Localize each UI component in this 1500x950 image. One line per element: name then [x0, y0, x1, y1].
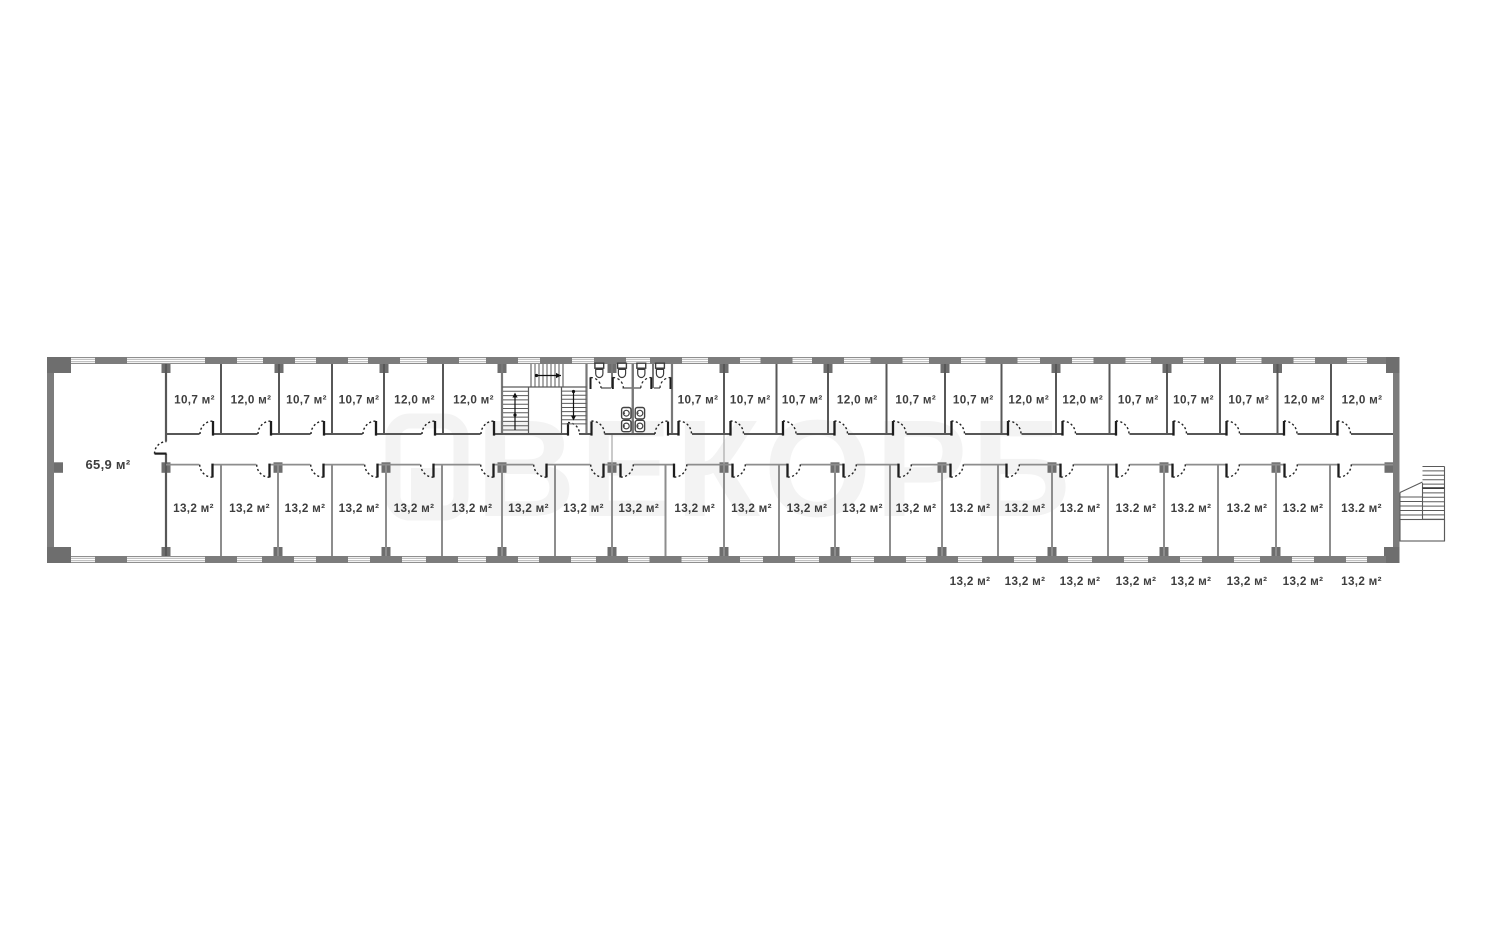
svg-text:10,7 м²: 10,7 м² — [286, 394, 327, 407]
svg-text:13.2 м²: 13.2 м² — [1005, 502, 1046, 515]
svg-text:13,2 м²: 13,2 м² — [618, 502, 659, 515]
svg-text:10,7 м²: 10,7 м² — [1228, 394, 1269, 407]
svg-text:12,0 м²: 12,0 м² — [394, 394, 435, 407]
svg-text:13.2 м²: 13.2 м² — [1116, 502, 1157, 515]
svg-text:13,2 м²: 13,2 м² — [173, 502, 214, 515]
svg-text:13.2 м²: 13.2 м² — [1283, 502, 1324, 515]
svg-text:13,2 м²: 13,2 м² — [394, 502, 435, 515]
svg-text:13,2 м²: 13,2 м² — [1227, 575, 1268, 588]
svg-text:12,0 м²: 12,0 м² — [837, 394, 878, 407]
svg-text:13,2 м²: 13,2 м² — [950, 575, 991, 588]
svg-text:13.2 м²: 13.2 м² — [950, 502, 991, 515]
svg-text:ВЕКОРБ: ВЕКОРБ — [476, 392, 1075, 546]
svg-text:10,7 м²: 10,7 м² — [678, 394, 719, 407]
svg-text:10,7 м²: 10,7 м² — [782, 394, 823, 407]
svg-text:13,2 м²: 13,2 м² — [1341, 575, 1382, 588]
svg-text:10,7 м²: 10,7 м² — [895, 394, 936, 407]
svg-text:13.2 м²: 13.2 м² — [1227, 502, 1268, 515]
svg-text:12,0 м²: 12,0 м² — [1284, 394, 1325, 407]
svg-text:10,7 м²: 10,7 м² — [953, 394, 994, 407]
svg-text:13,2 м²: 13,2 м² — [731, 502, 772, 515]
svg-text:12,0 м²: 12,0 м² — [453, 394, 494, 407]
svg-text:10,7 м²: 10,7 м² — [1118, 394, 1159, 407]
svg-text:13.2 м²: 13.2 м² — [1341, 502, 1382, 515]
svg-text:13,2 м²: 13,2 м² — [229, 502, 270, 515]
svg-text:13,2 м²: 13,2 м² — [842, 502, 883, 515]
svg-text:13.2 м²: 13.2 м² — [1060, 502, 1101, 515]
svg-text:10,7 м²: 10,7 м² — [339, 394, 380, 407]
svg-text:65,9 м²: 65,9 м² — [86, 457, 131, 472]
svg-text:12,0 м²: 12,0 м² — [231, 394, 272, 407]
svg-text:13,2 м²: 13,2 м² — [1005, 575, 1046, 588]
svg-text:13,2 м²: 13,2 м² — [787, 502, 828, 515]
svg-text:13,2 м²: 13,2 м² — [1171, 575, 1212, 588]
svg-text:12,0 м²: 12,0 м² — [1342, 394, 1383, 407]
svg-text:13,2 м²: 13,2 м² — [285, 502, 326, 515]
svg-text:12,0 м²: 12,0 м² — [1062, 394, 1103, 407]
svg-text:13,2 м²: 13,2 м² — [452, 502, 493, 515]
svg-text:13,2 м²: 13,2 м² — [1116, 575, 1157, 588]
svg-text:13,2 м²: 13,2 м² — [674, 502, 715, 515]
svg-text:13.2 м²: 13.2 м² — [1171, 502, 1212, 515]
svg-text:13,2 м²: 13,2 м² — [1283, 575, 1324, 588]
svg-text:10,7 м²: 10,7 м² — [730, 394, 771, 407]
svg-text:13,2 м²: 13,2 м² — [508, 502, 549, 515]
svg-text:10,7 м²: 10,7 м² — [1173, 394, 1214, 407]
svg-text:13,2 м²: 13,2 м² — [896, 502, 937, 515]
svg-text:13,2 м²: 13,2 м² — [563, 502, 604, 515]
svg-text:10,7 м²: 10,7 м² — [174, 394, 215, 407]
svg-text:12,0 м²: 12,0 м² — [1008, 394, 1049, 407]
svg-text:13,2 м²: 13,2 м² — [339, 502, 380, 515]
svg-text:13,2 м²: 13,2 м² — [1060, 575, 1101, 588]
